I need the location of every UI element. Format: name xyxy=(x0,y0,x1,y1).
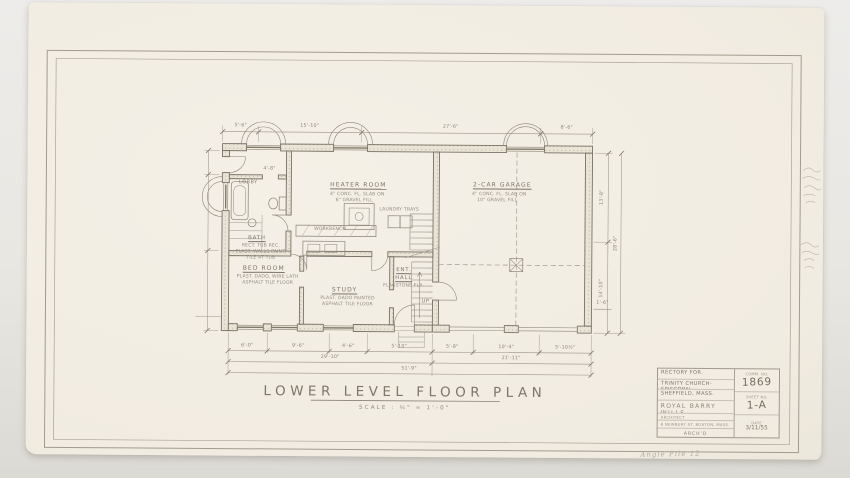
note-bath-3: TILE AT TUB xyxy=(246,256,275,261)
project-line-1: RECTORY FOR. xyxy=(658,369,734,380)
room-label-lobby: LOBBY xyxy=(239,180,258,185)
drawing-title: LOWER LEVEL FLOOR PLAN xyxy=(263,385,546,400)
title-block: RECTORY FOR. TRINITY CHURCH-EPISCOPAL SH… xyxy=(657,368,780,439)
comm-no-cell: COMM. NO. 1869 xyxy=(735,369,779,392)
note-study-2: ASPHALT TILE FLOOR xyxy=(322,303,373,308)
note-bedroom-2: ASPHALT TILE FLOOR xyxy=(242,281,293,286)
sheet-no-cell: SHEET NO. 1-A xyxy=(735,392,779,415)
dim-label: 15'-10" xyxy=(300,125,319,130)
label-up: UP xyxy=(422,299,430,304)
drawing-scale: SCALE : ¼" = 1'-0" xyxy=(359,406,451,412)
dim-overall-right: 28'-6" xyxy=(614,236,619,252)
drawing-layer: LOBBY 4'-8" BATH RECT. TUB REC. PLAST. W… xyxy=(0,0,850,478)
date-value: 3/11/55 xyxy=(745,425,767,431)
laundry-tray xyxy=(388,216,400,228)
project-line-3: SHEFFIELD, MASS. xyxy=(658,390,734,401)
interior-dim: 4'-8" xyxy=(263,167,275,172)
room-label-bedroom: BED ROOM xyxy=(243,266,285,272)
room-label-study: STUDY xyxy=(332,287,357,293)
margin-scribbles xyxy=(801,168,822,269)
title-block-right: COMM. NO. 1869 SHEET NO. 1-A DATE 3/11/5… xyxy=(735,369,779,437)
room-label-hall: HALL xyxy=(395,276,412,282)
label-laundry-trays: LAUNDRY TRAYS xyxy=(379,208,419,213)
dim-label: 5'-8" xyxy=(446,346,458,351)
room-label-ent: ENT. xyxy=(396,268,411,274)
dim-label: 5'-10" xyxy=(391,345,407,350)
dim-label: 10'-4" xyxy=(498,346,514,351)
sheet-no-value: 1-A xyxy=(747,399,767,412)
walls xyxy=(221,144,592,334)
title-block-left: RECTORY FOR. TRINITY CHURCH-EPISCOPAL SH… xyxy=(658,369,735,438)
dim-small: 1'-6" xyxy=(596,302,608,307)
handwritten-note: Angle File 12 xyxy=(640,451,700,459)
date-cell: DATE 3/11/55 xyxy=(735,415,779,437)
dim-label: 5'-6" xyxy=(235,124,247,129)
note-garage-2: 10" GRAVEL FILL xyxy=(477,199,517,204)
window-wells xyxy=(202,121,548,218)
room-label-garage: 2-CAR GARAGE xyxy=(473,182,532,188)
scan-background: LOBBY 4'-8" BATH RECT. TUB REC. PLAST. W… xyxy=(0,0,850,478)
dim-label: 4'-6" xyxy=(342,345,354,350)
project-line-2: TRINITY CHURCH-EPISCOPAL xyxy=(658,379,734,390)
dim-label: 27'-6" xyxy=(443,126,459,131)
dim-label: 8'-6" xyxy=(561,127,573,132)
room-label-heater: HEATER ROOM xyxy=(330,182,386,188)
dim-total: 21'-11" xyxy=(502,357,521,362)
toilet-bowl xyxy=(269,198,278,209)
dim-total: 29'-10" xyxy=(321,356,340,361)
note-heater-2: 6" GRAVEL FILL xyxy=(336,199,373,204)
archd-label: ARCH'D xyxy=(658,428,734,437)
dim-label: 5'-10½" xyxy=(555,347,576,352)
drawing-sheet: LOBBY 4'-8" BATH RECT. TUB REC. PLAST. W… xyxy=(25,2,824,460)
dim-label: 13'-8" xyxy=(601,189,606,205)
dim-label: 6'-0" xyxy=(241,344,253,349)
dim-label: 9'-6" xyxy=(292,345,304,350)
label-workbench: WORKBENCH xyxy=(314,228,346,233)
dim-label: 14'-10" xyxy=(600,279,605,298)
comm-no-value: 1869 xyxy=(742,376,772,389)
note-ent: FLAGSTONE FLR. xyxy=(383,284,424,289)
toilet-tank xyxy=(279,197,286,210)
dim-overall: 51'-9" xyxy=(401,367,417,372)
firm-name: ROYAL BARRY WILLS xyxy=(658,400,734,414)
room-label-bath: BATH xyxy=(248,236,266,242)
